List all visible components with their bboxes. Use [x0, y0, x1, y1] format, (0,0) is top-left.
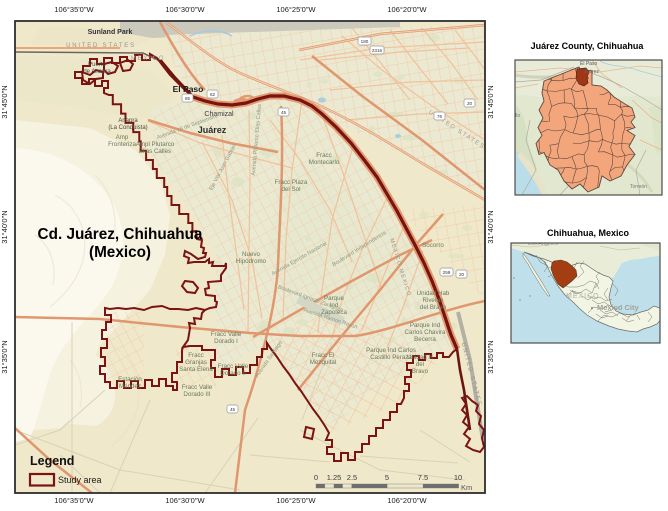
svg-text:Bravo: Bravo	[412, 368, 429, 375]
svg-text:Km: Km	[461, 483, 472, 492]
svg-text:El Paso: El Paso	[580, 61, 597, 67]
svg-text:106°25'0"W: 106°25'0"W	[276, 496, 316, 505]
svg-text:Fracc: Fracc	[188, 352, 203, 359]
svg-text:MEXICO: MEXICO	[131, 56, 165, 62]
svg-text:Cd. Juárez, Chihuahua: Cd. Juárez, Chihuahua	[38, 226, 203, 243]
svg-text:180: 180	[361, 39, 369, 44]
svg-text:0: 0	[314, 473, 318, 482]
svg-text:UNITED STATES: UNITED STATES	[66, 43, 136, 49]
svg-text:10: 10	[454, 473, 462, 482]
svg-text:5: 5	[385, 473, 389, 482]
svg-text:Dorado I: Dorado I	[214, 338, 238, 345]
svg-text:Juárez: Juárez	[198, 125, 227, 135]
svg-text:31°40'0"N: 31°40'0"N	[0, 210, 9, 243]
svg-text:106°35'0"W: 106°35'0"W	[54, 5, 94, 14]
svg-text:20: 20	[467, 101, 473, 106]
svg-text:106°25'0"W: 106°25'0"W	[276, 5, 316, 14]
svg-text:Fracc Valle: Fracc Valle	[211, 331, 242, 338]
svg-text:(Mexico): (Mexico)	[89, 244, 151, 261]
svg-text:Mexico City: Mexico City	[597, 303, 640, 312]
svg-text:Becerra: Becerra	[414, 336, 436, 343]
svg-text:Granjas: Granjas	[185, 359, 207, 366]
svg-text:106°20'0"W: 106°20'0"W	[387, 496, 427, 505]
svg-text:7.5: 7.5	[418, 473, 428, 482]
svg-text:45: 45	[230, 407, 236, 412]
svg-text:del: del	[416, 361, 424, 368]
svg-text:Castillo Peraza: Castillo Peraza	[370, 354, 412, 361]
svg-text:Unidad Hab: Unidad Hab	[417, 290, 450, 297]
svg-text:Fracc: Fracc	[316, 152, 331, 159]
svg-text:1.25: 1.25	[327, 473, 342, 482]
svg-text:Juárez: Juárez	[584, 69, 600, 75]
svg-text:106°20'0"W: 106°20'0"W	[387, 5, 427, 14]
svg-text:Mezquital: Mezquital	[310, 359, 336, 366]
svg-text:Unidad H: Unidad H	[407, 354, 433, 361]
svg-text:Santa Elena: Santa Elena	[179, 366, 213, 373]
svg-text:Puerto: Puerto	[88, 62, 106, 68]
svg-text:Chihuahua, Mexico: Chihuahua, Mexico	[547, 228, 630, 238]
svg-text:Elias Calles: Elias Calles	[139, 148, 171, 155]
svg-text:Amp: Amp	[116, 134, 129, 141]
svg-text:76: 76	[437, 114, 443, 119]
svg-text:Anapra: Anapra	[118, 118, 138, 124]
svg-text:31°45'0"N: 31°45'0"N	[486, 85, 495, 118]
svg-text:Fracc Valle: Fracc Valle	[182, 384, 213, 391]
svg-text:de Anapra: de Anapra	[83, 69, 111, 75]
svg-text:Juárez County, Chihuahua: Juárez County, Chihuahua	[531, 41, 645, 51]
svg-text:del Sol: del Sol	[282, 186, 301, 193]
svg-text:Fracc Valle: Fracc Valle	[218, 363, 249, 370]
svg-text:Parque Ind: Parque Ind	[410, 322, 441, 329]
svg-text:31°35'0"N: 31°35'0"N	[0, 340, 9, 373]
svg-text:Carlos Chavira: Carlos Chavira	[405, 329, 446, 336]
svg-text:Fronteriza: Fronteriza	[108, 141, 136, 148]
svg-text:Hipódromo: Hipódromo	[236, 258, 267, 265]
svg-text:Sunland Park: Sunland Park	[88, 29, 133, 36]
svg-text:20: 20	[459, 272, 465, 277]
svg-text:Nuevo: Nuevo	[242, 251, 260, 258]
svg-text:31°35'0"N: 31°35'0"N	[486, 340, 495, 373]
svg-text:106°30'0"W: 106°30'0"W	[165, 5, 205, 14]
svg-text:Socorro: Socorro	[422, 242, 444, 249]
svg-text:Dorado II: Dorado II	[220, 370, 246, 377]
svg-text:Study area: Study area	[58, 475, 102, 485]
svg-text:Torreón: Torreón	[630, 184, 647, 190]
svg-text:31°45'0"N: 31°45'0"N	[0, 85, 9, 118]
svg-text:31°40'0"N: 31°40'0"N	[486, 210, 495, 243]
svg-text:Méndez: Méndez	[119, 383, 141, 390]
svg-text:(La Conquista): (La Conquista)	[108, 125, 147, 131]
svg-text:2316: 2316	[372, 48, 383, 53]
svg-text:Dorado III: Dorado III	[183, 391, 210, 398]
svg-text:Ampl Plutarco: Ampl Plutarco	[136, 141, 175, 148]
svg-text:Montecarlo: Montecarlo	[309, 159, 340, 166]
svg-text:del Bravo: del Bravo	[420, 304, 447, 311]
svg-text:Los Angeles: Los Angeles	[528, 241, 558, 247]
svg-text:2.5: 2.5	[347, 473, 357, 482]
svg-text:Fracc Plaza: Fracc Plaza	[275, 179, 308, 186]
svg-text:259: 259	[443, 270, 451, 275]
svg-text:Riveras: Riveras	[423, 297, 444, 304]
svg-text:MEXICO: MEXICO	[566, 293, 600, 300]
svg-text:Parque Ind Carlos: Parque Ind Carlos	[366, 347, 416, 354]
svg-text:Estación: Estación	[118, 376, 142, 383]
svg-text:85: 85	[185, 96, 191, 101]
svg-text:El Paso: El Paso	[173, 84, 204, 94]
svg-text:62: 62	[210, 92, 216, 97]
svg-text:Legend: Legend	[30, 454, 74, 468]
svg-text:106°35'0"W: 106°35'0"W	[54, 496, 94, 505]
svg-text:Fracc El: Fracc El	[312, 352, 335, 359]
svg-text:106°30'0"W: 106°30'0"W	[165, 496, 205, 505]
svg-text:45: 45	[281, 110, 287, 115]
